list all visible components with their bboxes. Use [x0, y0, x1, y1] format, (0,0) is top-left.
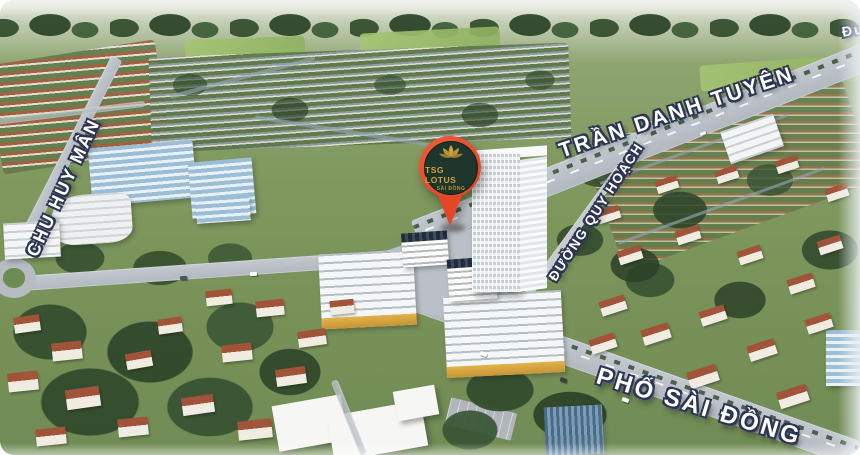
pin-title: TSG LOTUS	[425, 165, 477, 185]
tower-side-face	[520, 156, 547, 292]
car	[180, 276, 187, 280]
villa-house	[117, 416, 149, 437]
villa-house	[776, 384, 810, 409]
car	[250, 272, 257, 276]
pin-head: TSG LOTUS SÀI ĐỒNG	[419, 136, 481, 198]
villa-house	[746, 338, 778, 362]
villa-house	[686, 364, 720, 389]
pin-badge: TSG LOTUS SÀI ĐỒNG	[424, 141, 478, 195]
street-label-partial-edge: Đư	[840, 20, 860, 40]
podium-block	[401, 230, 449, 267]
villa-house	[221, 342, 253, 362]
villa-house	[588, 332, 617, 354]
villa-house	[237, 418, 273, 440]
location-pin-icon[interactable]: TSG LOTUS SÀI ĐỒNG	[413, 136, 487, 232]
lotus-icon	[438, 145, 464, 164]
villa-house	[51, 340, 83, 361]
villa-house	[35, 426, 67, 446]
edge-building	[826, 330, 860, 386]
villa-house	[205, 289, 232, 307]
villa-house	[7, 370, 39, 392]
villa-house	[329, 299, 354, 315]
villa-house	[255, 299, 285, 318]
pin-subtitle: SÀI ĐỒNG	[437, 186, 466, 192]
aerial-location-map: CHU HUY MÂN TRẦN DANH TUYÊN ĐƯỜNG QUY HO…	[0, 0, 860, 455]
glass-building	[544, 405, 604, 455]
office-building	[195, 194, 251, 224]
apartment-slab	[443, 290, 565, 378]
